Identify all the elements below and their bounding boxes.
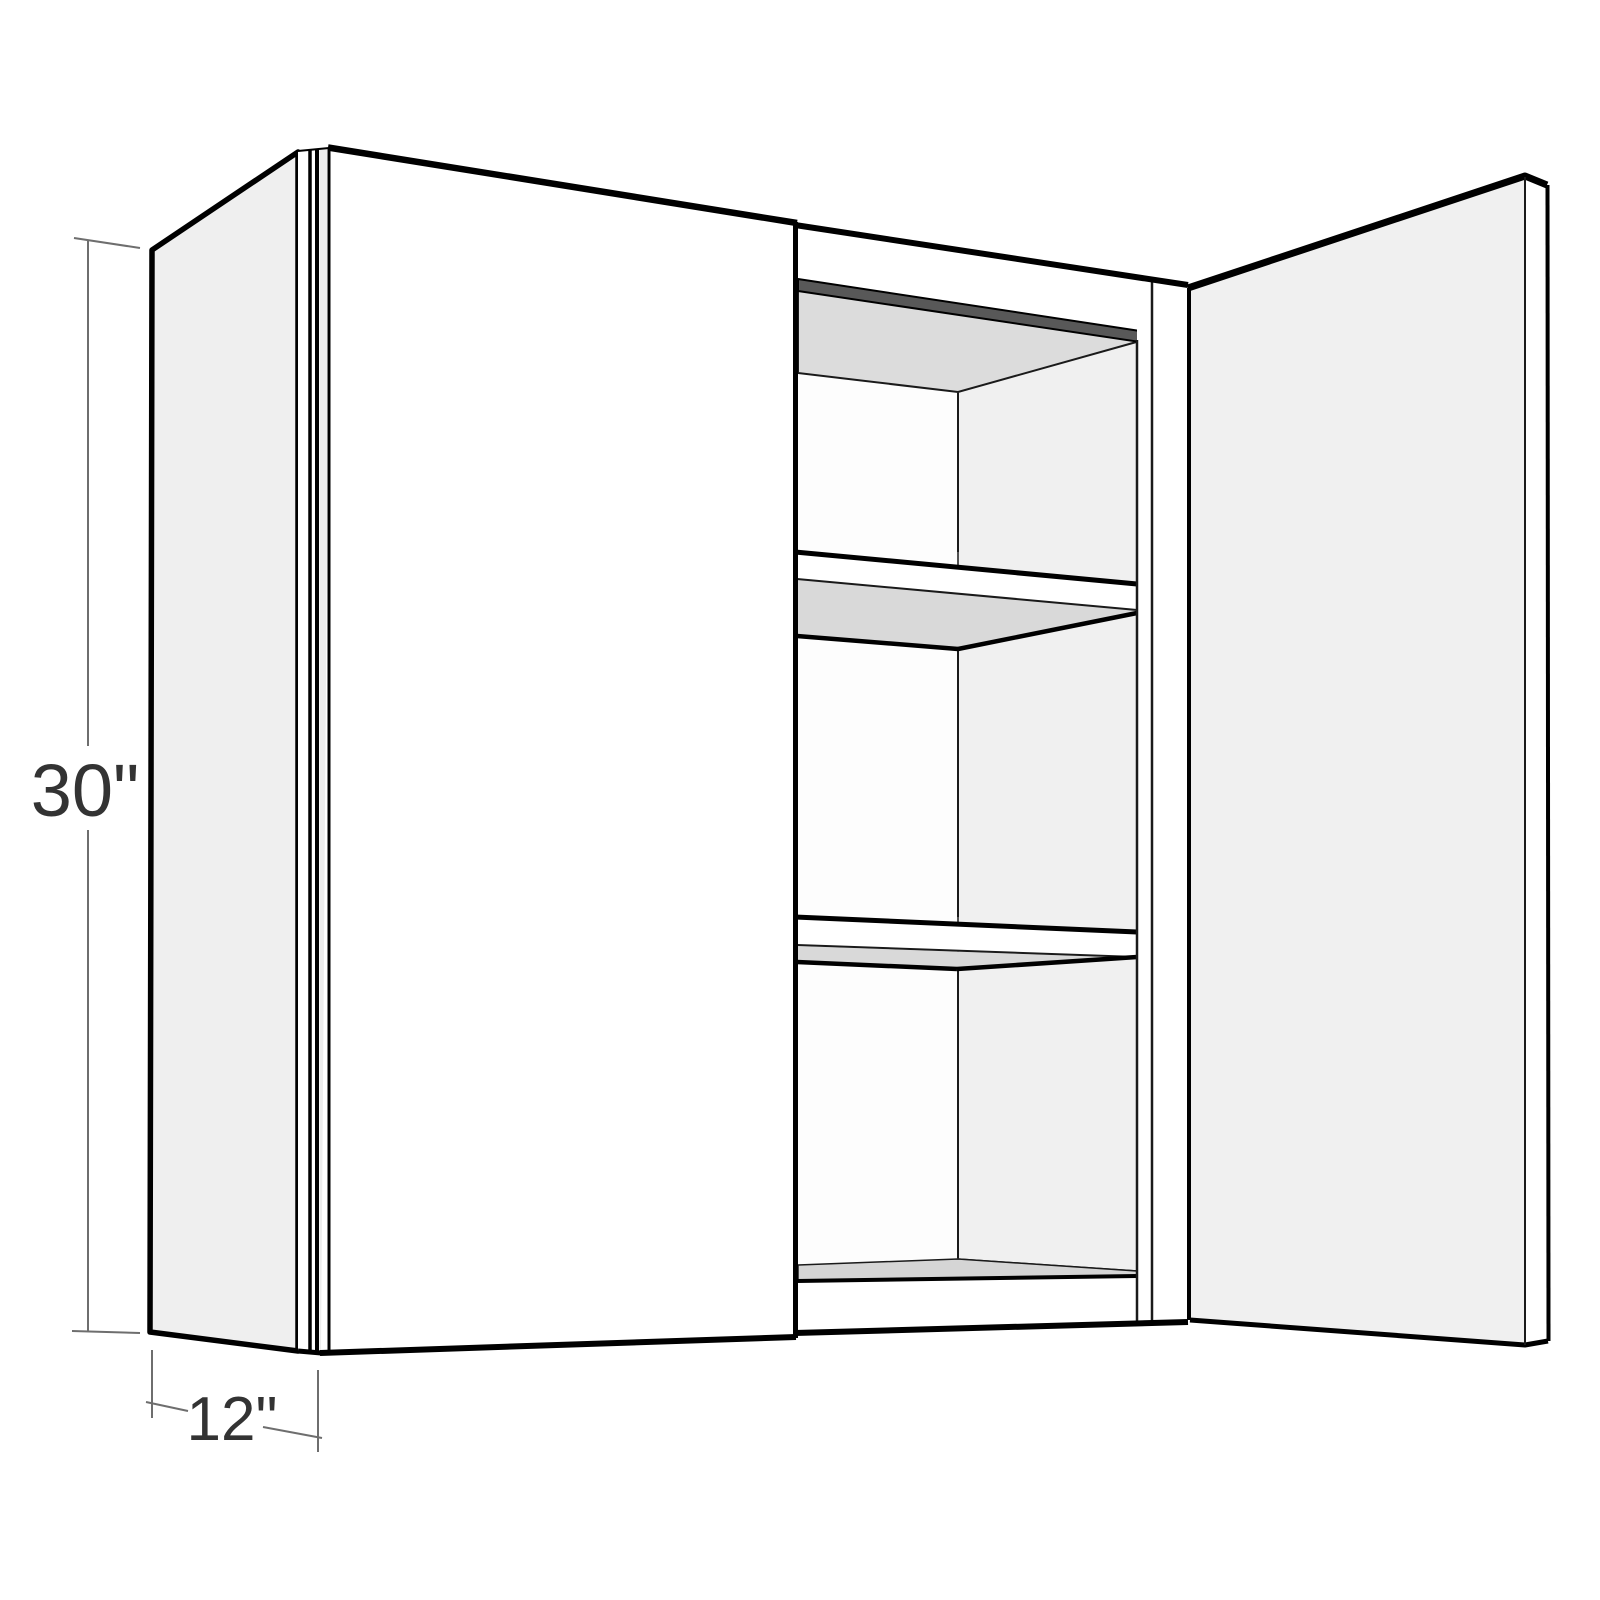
height-dimension-label: 30" — [31, 749, 140, 832]
closed-door-face — [321, 148, 795, 1353]
right-stile — [1137, 277, 1188, 1323]
cabinet-dimension-diagram: 30" 12" — [0, 0, 1600, 1600]
cabinet-top-front-edge — [795, 225, 1188, 285]
depth-dimension-label: 12" — [187, 1385, 278, 1454]
closed-left-door — [320, 148, 797, 1354]
open-door-edge-band — [1525, 176, 1548, 1345]
left-side-panel — [150, 152, 298, 1351]
cabinet-drawing: 30" 12" — [0, 0, 1600, 1600]
open-right-door — [1188, 176, 1549, 1345]
cabinet-interior — [795, 225, 1188, 1333]
open-door-inner-face — [1188, 176, 1525, 1345]
interior-back-wall — [798, 373, 958, 1265]
height-extension-line-bottom — [72, 1331, 140, 1333]
interior-right-wall — [958, 340, 1137, 1271]
height-extension-line-top — [74, 238, 140, 248]
